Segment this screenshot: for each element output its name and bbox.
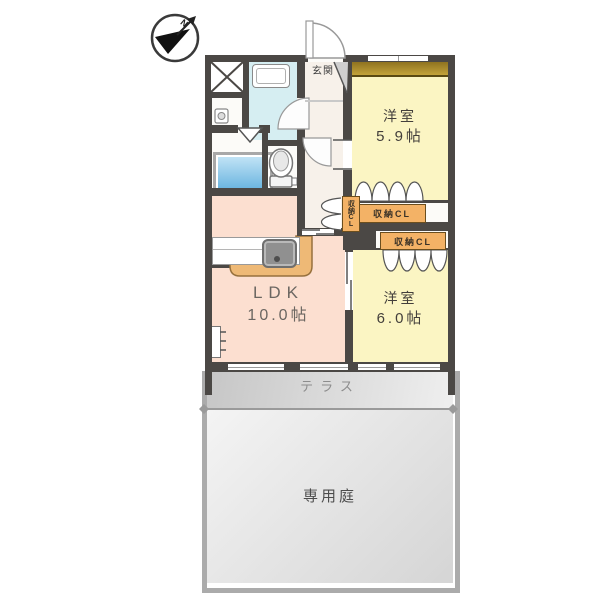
wall-wet-bottom (205, 188, 305, 196)
vanity-sink (252, 64, 290, 88)
ldk-name: LDK (212, 282, 345, 303)
closet-b-text: 収納CL (394, 235, 432, 248)
entrance-step-line (305, 100, 343, 102)
wall-closet-horizontal (352, 222, 455, 231)
terrace-label: テラス (230, 379, 430, 395)
faucet-icon (274, 256, 280, 262)
garden-label: 専用庭 (230, 488, 430, 507)
window-ldk-1 (228, 364, 284, 370)
window-top (368, 56, 428, 61)
floor-plan: テラス 専用庭 (0, 0, 600, 600)
window-bedroom2-1 (358, 364, 386, 370)
divider-end-right-icon (448, 404, 458, 414)
window-ldk-2 (300, 364, 348, 370)
wall-left (205, 55, 212, 395)
bedroom1-label: 洋室 5.9帖 (352, 108, 448, 146)
bedroom1-door-arc (303, 137, 332, 167)
bedroom2-sliding-door (345, 252, 353, 310)
bedroom1-name: 洋室 (352, 108, 448, 126)
terrace-garden-divider (207, 408, 453, 410)
divider-end-left-icon (199, 404, 209, 414)
washer-icon (213, 107, 231, 125)
closet-hall-text: 収納CL (348, 200, 355, 228)
bedroom2-name: 洋室 (353, 290, 448, 308)
wall-closet-chunk (343, 231, 376, 250)
kitchen-sink (262, 239, 297, 268)
entrance-label: 玄関 (303, 66, 343, 79)
bay-window-sill (352, 62, 448, 77)
toilet-icon (265, 146, 299, 192)
wall-corridor-right-mid (343, 170, 352, 196)
bedroom2-label: 洋室 6.0帖 (353, 290, 448, 328)
closet-a-label: 収納CL (358, 204, 426, 223)
closet-a-text: 収納CL (373, 207, 411, 220)
ldk-size: 10.0帖 (212, 306, 345, 326)
ldk-label: LDK 10.0帖 (212, 282, 345, 326)
meter-box-ticks (220, 328, 228, 354)
closet-b-bifold-doors (382, 249, 448, 272)
wall-toilet-top (262, 140, 300, 146)
bedroom2-size: 6.0帖 (353, 310, 448, 329)
wall-bath-top-left (205, 125, 238, 133)
bedroom1-door-jamb (333, 139, 353, 171)
closet-b-label: 収納CL (380, 232, 446, 250)
kitchen-counter-line (213, 249, 263, 250)
bedroom1-size: 5.9帖 (352, 128, 448, 147)
bathroom-folding-door-icon (237, 126, 263, 144)
vanity-basin (256, 68, 286, 84)
closet-hall-bifold-doors (311, 197, 342, 230)
closet-a-bifold-doors (354, 181, 424, 202)
entrance-door-icon (302, 18, 350, 64)
compass-icon: N (148, 10, 204, 66)
window-bedroom2-2 (394, 364, 440, 370)
closet-hall-label: 収納CL (342, 196, 360, 232)
pipe-shaft-icon (207, 58, 247, 96)
